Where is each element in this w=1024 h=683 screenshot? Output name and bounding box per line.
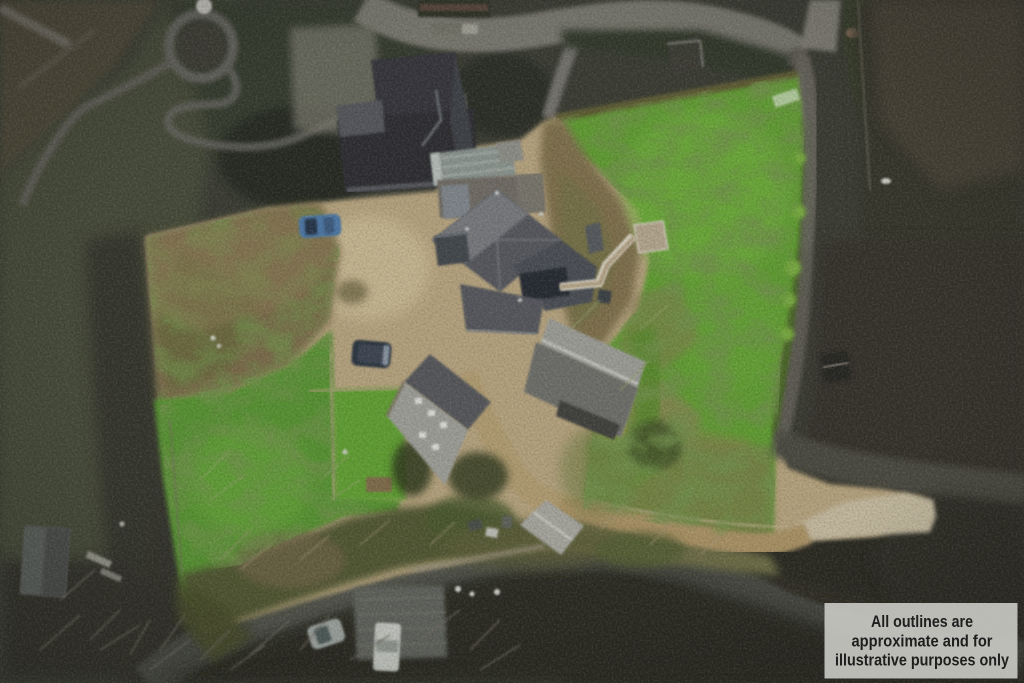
svg-text:approximate and for: approximate and for [852,632,994,650]
svg-text:All outlines are: All outlines are [871,613,973,631]
svg-text:illustrative purposes only: illustrative purposes only [835,652,1010,670]
